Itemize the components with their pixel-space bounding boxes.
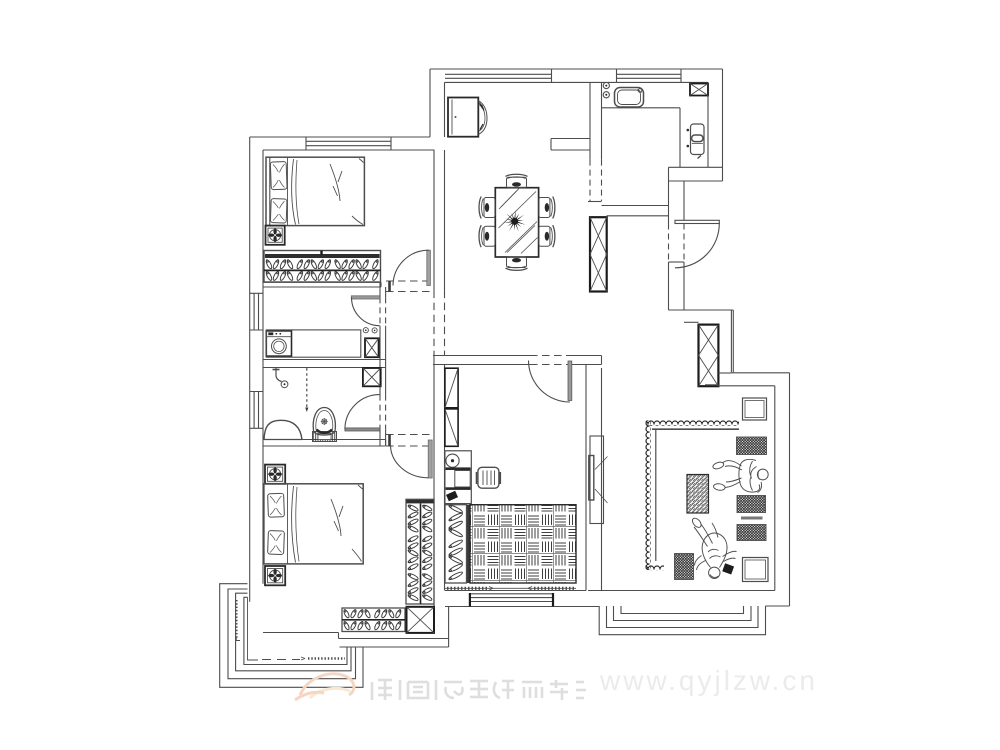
svg-text:www.qyjlzw.cn: www.qyjlzw.cn — [599, 665, 818, 696]
